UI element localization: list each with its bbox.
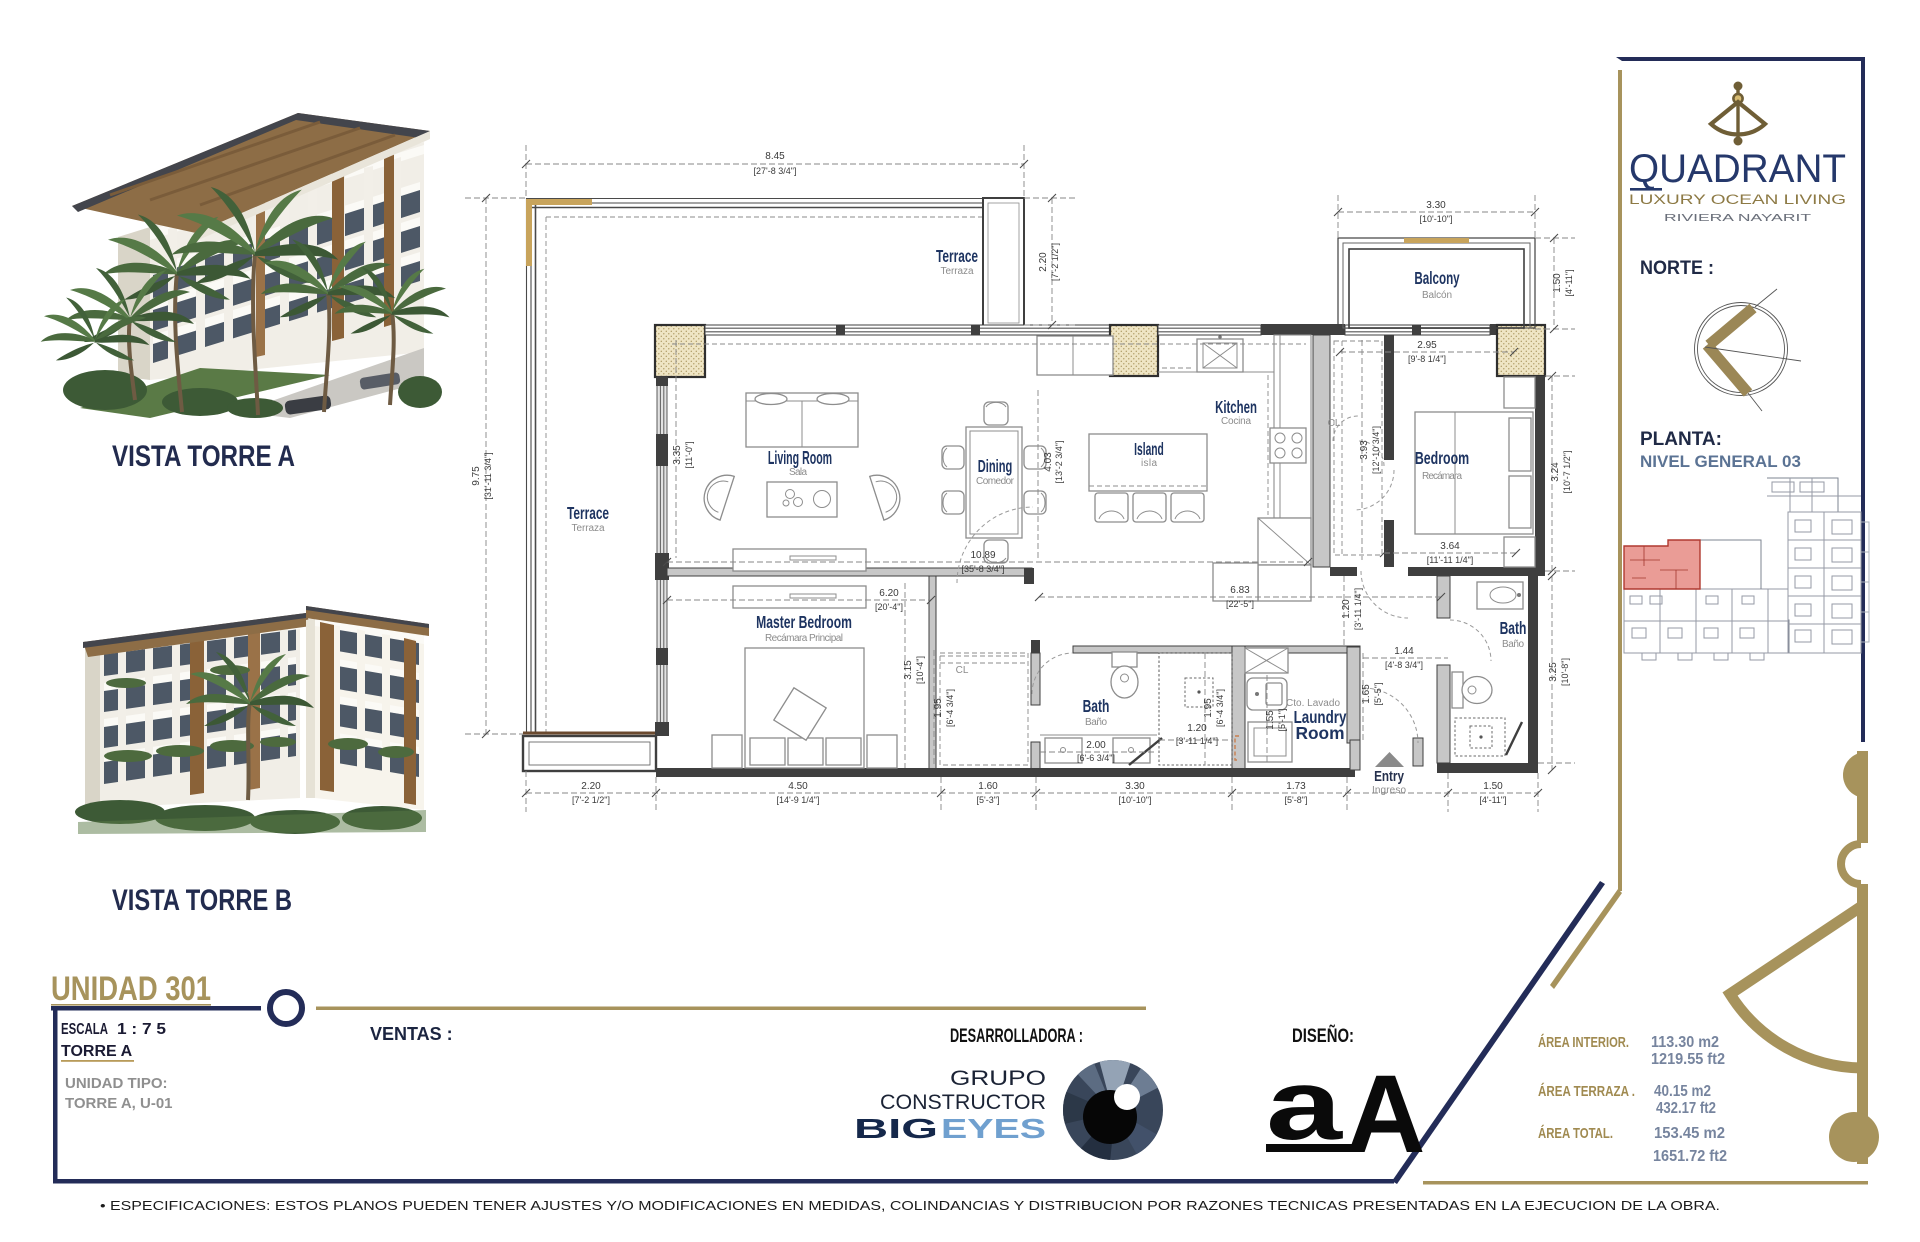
svg-text:BIG: BIG — [854, 1113, 938, 1144]
svg-text:Balcón: Balcón — [1422, 290, 1452, 301]
svg-text:3.25: 3.25 — [1548, 662, 1559, 682]
svg-text:[3'-11 1/4"]: [3'-11 1/4"] — [1353, 588, 1363, 630]
svg-text:3.30: 3.30 — [1426, 200, 1446, 211]
svg-text:VENTAS :: VENTAS : — [370, 1024, 453, 1044]
svg-text:3.24: 3.24 — [1550, 462, 1561, 482]
svg-text:QUADRANT: QUADRANT — [1629, 147, 1846, 191]
svg-text:1.95: 1.95 — [1203, 698, 1214, 718]
svg-text:113.30 m2: 113.30 m2 — [1651, 1034, 1719, 1051]
svg-text:NIVEL GENERAL 03: NIVEL GENERAL 03 — [1640, 452, 1801, 471]
svg-text:1.50: 1.50 — [1552, 273, 1563, 293]
svg-text:Kitchen: Kitchen — [1215, 397, 1257, 417]
svg-text:CL: CL — [956, 665, 969, 676]
svg-text:Balcony: Balcony — [1414, 269, 1460, 289]
svg-text:3.64: 3.64 — [1440, 541, 1460, 552]
svg-text:Entry: Entry — [1374, 768, 1404, 785]
svg-text:2.20: 2.20 — [1038, 252, 1049, 272]
svg-text:UNIDAD TIPO:: UNIDAD TIPO: — [65, 1075, 168, 1092]
svg-text:Cocina: Cocina — [1221, 416, 1251, 427]
svg-text:1.60: 1.60 — [978, 781, 998, 792]
svg-text:[6'-4 3/4"]: [6'-4 3/4"] — [945, 689, 955, 727]
svg-text:Recámara: Recámara — [1422, 471, 1462, 482]
svg-text:Dining: Dining — [978, 456, 1013, 476]
svg-text:40.15 m2: 40.15 m2 — [1654, 1083, 1711, 1100]
svg-text:[14'-9 1/4"]: [14'-9 1/4"] — [777, 795, 820, 805]
svg-text:• ESPECIFICACIONES: ESTOS PLAN: • ESPECIFICACIONES: ESTOS PLANOS PUEDEN … — [100, 1198, 1720, 1213]
svg-text:1.65: 1.65 — [1361, 684, 1372, 704]
svg-text:2.00: 2.00 — [1086, 740, 1106, 751]
svg-text:[22'-5"]: [22'-5"] — [1226, 599, 1254, 609]
svg-text:DISEÑO:: DISEÑO: — [1292, 1025, 1354, 1047]
svg-text:A: A — [1346, 1053, 1425, 1176]
svg-text:6.20: 6.20 — [879, 588, 899, 599]
svg-text:[5'-3"]: [5'-3"] — [977, 795, 1000, 805]
svg-text:1.55: 1.55 — [1265, 710, 1276, 730]
svg-text:153.45 m2: 153.45 m2 — [1654, 1125, 1725, 1142]
svg-text:PLANTA:: PLANTA: — [1640, 429, 1722, 450]
svg-text:[31'-11 3/4"]: [31'-11 3/4"] — [483, 452, 493, 499]
svg-text:Ingreso: Ingreso — [1372, 785, 1406, 796]
svg-text:TORRE A: TORRE A — [61, 1043, 133, 1060]
svg-text:[10'-8"]: [10'-8"] — [1560, 658, 1570, 686]
svg-text:1.73: 1.73 — [1286, 781, 1306, 792]
svg-text:8.45: 8.45 — [765, 151, 785, 162]
svg-text:[7'-2 1/2"]: [7'-2 1/2"] — [572, 795, 610, 805]
svg-text:TORRE A, U-01: TORRE A, U-01 — [65, 1095, 173, 1112]
svg-text:Room: Room — [1295, 723, 1344, 743]
svg-text:432.17 ft2: 432.17 ft2 — [1656, 1100, 1716, 1117]
svg-text:[4'-8 3/4"]: [4'-8 3/4"] — [1385, 660, 1423, 670]
svg-text:4.03: 4.03 — [1043, 452, 1054, 472]
svg-text:2.95: 2.95 — [1417, 340, 1437, 351]
svg-text:isla: isla — [1141, 458, 1157, 469]
svg-text:ÁREA TOTAL.: ÁREA TOTAL. — [1538, 1125, 1613, 1142]
svg-text:[35'-8 3/4"]: [35'-8 3/4"] — [962, 564, 1005, 574]
svg-text:3.93: 3.93 — [1359, 440, 1370, 460]
svg-text:LUXURY OCEAN LIVING: LUXURY OCEAN LIVING — [1629, 192, 1846, 207]
svg-text:Island: Island — [1134, 440, 1164, 460]
svg-text:EYES: EYES — [941, 1113, 1046, 1144]
svg-text:3.30: 3.30 — [1125, 781, 1145, 792]
svg-text:Living Room: Living Room — [768, 449, 832, 468]
svg-text:Terrace: Terrace — [567, 504, 609, 524]
svg-text:ÁREA INTERIOR.: ÁREA INTERIOR. — [1538, 1034, 1629, 1051]
svg-text:3.15: 3.15 — [903, 660, 914, 680]
svg-text:NORTE :: NORTE : — [1640, 258, 1714, 279]
svg-text:1.20: 1.20 — [1187, 723, 1207, 734]
svg-text:Baño: Baño — [1085, 717, 1107, 728]
svg-text:[4'-11"]: [4'-11"] — [1479, 795, 1506, 805]
svg-text:9.75: 9.75 — [471, 466, 482, 486]
svg-text:Master Bedroom: Master Bedroom — [756, 613, 852, 633]
svg-text:Bedroom: Bedroom — [1415, 449, 1469, 469]
svg-text:[12'-10 3/4"]: [12'-10 3/4"] — [1371, 426, 1381, 474]
svg-text:Bath: Bath — [1083, 697, 1110, 717]
svg-text:VISTA TORRE B: VISTA TORRE B — [112, 884, 292, 917]
svg-text:Terraza: Terraza — [941, 266, 974, 277]
svg-text:[10'-7 1/2"]: [10'-7 1/2"] — [1562, 451, 1572, 494]
svg-text:[4'-11"]: [4'-11"] — [1564, 269, 1574, 296]
svg-text:Baño: Baño — [1502, 639, 1524, 650]
svg-text:[27'-8 3/4"]: [27'-8 3/4"] — [754, 166, 797, 176]
svg-text:[9'-8 1/4"]: [9'-8 1/4"] — [1408, 354, 1446, 364]
svg-text:6.83: 6.83 — [1230, 585, 1250, 596]
svg-text:Terrace: Terrace — [936, 247, 978, 267]
svg-text:RIVIERA NAYARIT: RIVIERA NAYARIT — [1664, 212, 1812, 224]
svg-text:1.50: 1.50 — [1483, 781, 1503, 792]
svg-text:1219.55 ft2: 1219.55 ft2 — [1651, 1051, 1725, 1068]
svg-text:1.20: 1.20 — [1341, 599, 1352, 619]
svg-text:[10'-10"]: [10'-10"] — [1119, 795, 1152, 805]
svg-text:[11'-0"]: [11'-0"] — [684, 441, 694, 468]
svg-text:[5'-8"]: [5'-8"] — [1285, 795, 1308, 805]
svg-text:UNIDAD 301: UNIDAD 301 — [51, 970, 211, 1008]
svg-text:DESARROLLADORA :: DESARROLLADORA : — [950, 1026, 1083, 1047]
svg-text:10.89: 10.89 — [970, 550, 995, 561]
svg-text:[11'-11 1/4"]: [11'-11 1/4"] — [1427, 555, 1474, 565]
svg-text:[6'-6 3/4"]: [6'-6 3/4"] — [1077, 753, 1115, 763]
svg-text:[6'-4 3/4"]: [6'-4 3/4"] — [1215, 689, 1225, 727]
svg-text:[7'-2 1/2"]: [7'-2 1/2"] — [1050, 243, 1060, 281]
svg-text:3.35: 3.35 — [672, 445, 683, 465]
svg-text:[5'-1"]: [5'-1"] — [1277, 709, 1287, 732]
svg-text:2.20: 2.20 — [581, 781, 601, 792]
svg-text:[20'-4"]: [20'-4"] — [875, 602, 903, 612]
svg-text:[10'-4"]: [10'-4"] — [915, 656, 925, 684]
svg-text:Bath: Bath — [1500, 619, 1527, 639]
svg-text:ESCALA: ESCALA — [61, 1021, 108, 1038]
svg-text:Recámara Principal: Recámara Principal — [765, 633, 843, 644]
svg-text:GRUPO: GRUPO — [950, 1067, 1046, 1090]
svg-text:CONSTRUCTOR: CONSTRUCTOR — [880, 1091, 1046, 1114]
svg-text:1.95: 1.95 — [933, 698, 944, 718]
svg-text:CL: CL — [1328, 418, 1341, 429]
svg-text:ÁREA TERRAZA .: ÁREA TERRAZA . — [1538, 1083, 1635, 1100]
svg-text:1.44: 1.44 — [1394, 646, 1414, 657]
svg-text:Sala: Sala — [789, 467, 807, 478]
svg-text:4.50: 4.50 — [788, 781, 808, 792]
svg-text:VISTA TORRE A: VISTA TORRE A — [112, 440, 295, 473]
svg-text:[5'-5"]: [5'-5"] — [1373, 683, 1383, 706]
svg-text:[10'-10"]: [10'-10"] — [1420, 214, 1453, 224]
svg-text:Comedor: Comedor — [976, 476, 1015, 487]
svg-text:[3'-11 1/4"]: [3'-11 1/4"] — [1176, 736, 1218, 746]
svg-text:1 : 7 5: 1 : 7 5 — [117, 1021, 166, 1038]
svg-text:1651.72 ft2: 1651.72 ft2 — [1653, 1148, 1727, 1165]
svg-text:[13'-2 3/4"]: [13'-2 3/4"] — [1054, 441, 1064, 484]
svg-text:Terraza: Terraza — [572, 523, 605, 534]
